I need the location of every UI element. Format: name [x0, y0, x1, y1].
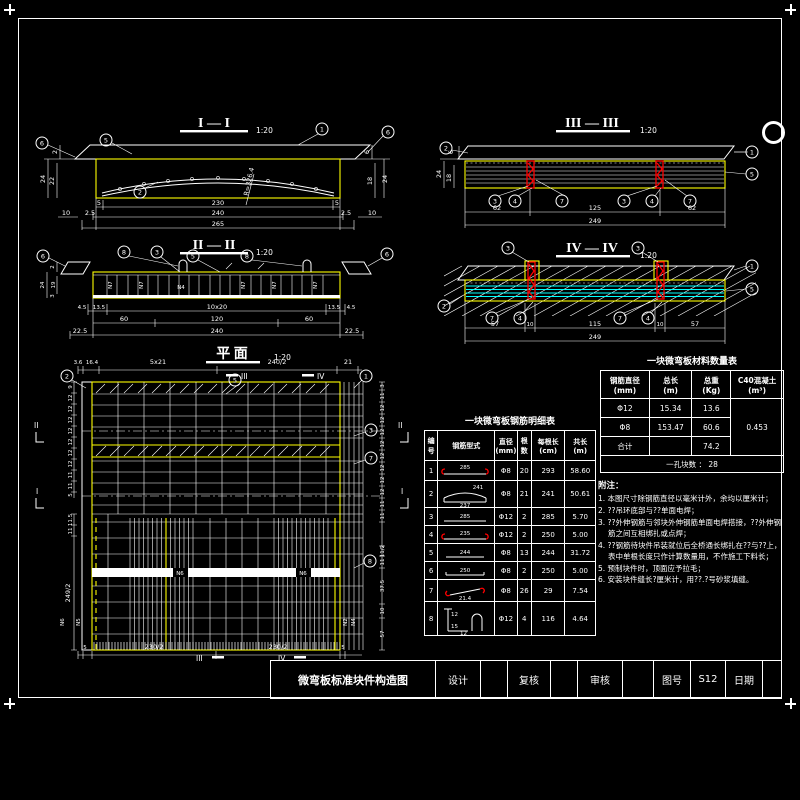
cell: Φ12 — [495, 526, 517, 544]
dim-lines: 57 10 115 10 57 249 — [465, 301, 725, 344]
cell: 1 — [425, 461, 438, 481]
cell: 13 — [517, 544, 531, 562]
cell: 153.47 — [649, 418, 692, 437]
bar-shape-7: 21.4 — [438, 580, 495, 602]
dim-label: 5 — [68, 493, 74, 497]
dim-label: 12 — [380, 417, 386, 424]
dim-label: 22.5 — [345, 327, 359, 335]
title-block: 微弯板标准块件构造图 设计 复核 审核 图号 S12 日期 — [270, 660, 782, 699]
col-header: 直径 (mm) — [495, 431, 517, 461]
table-row: 4 235 Φ12 2 250 5.00 — [425, 526, 596, 544]
dim-label: 11.5 — [68, 513, 74, 526]
dim-label: 10 — [527, 322, 534, 328]
bar-label: N6 — [299, 571, 307, 577]
dim-label: 9 — [68, 385, 74, 389]
section-title: II — II — [193, 238, 236, 253]
dim-label: 11 — [380, 559, 386, 566]
callout-number: 7 — [688, 198, 692, 206]
dense-bar-zone — [126, 518, 194, 650]
dim-label: 5x21 — [150, 358, 166, 366]
bar-shape-6: 250 — [438, 562, 495, 580]
dim-label: 3.6 — [74, 360, 83, 366]
design-value — [480, 661, 507, 698]
review-value — [622, 661, 653, 698]
callout-number: 1 — [750, 263, 754, 271]
col-header: 总长 (m) — [649, 371, 692, 399]
dim-label: 12 — [68, 428, 74, 435]
dim-label: 6 — [363, 150, 371, 154]
check-label: 复核 — [507, 661, 550, 698]
table-row: 1 285 Φ8 20 293 58.60 — [425, 461, 596, 481]
dim-label: 12 — [380, 441, 386, 448]
dim-label: 12 — [68, 439, 74, 446]
dim-label: 57 — [380, 630, 386, 637]
bar-label: N7 — [272, 281, 278, 289]
section-title: III — III — [565, 116, 619, 131]
col-header: 钢筋型式 — [438, 431, 495, 461]
cell: 7.54 — [565, 580, 596, 602]
edge-wing-hatch — [342, 262, 371, 274]
section-I-I-panel: I — I 1:20 R=326.4 5 230 5 2.5 240 2.5 2… — [30, 112, 402, 235]
dim-label: 240 — [211, 327, 223, 335]
bar-label: N4 — [177, 285, 185, 291]
section-flag: II — [34, 421, 38, 430]
check-value — [550, 661, 577, 698]
material-table: 钢筋直径 (mm) 总长 (m) 总重 (Kg) C40混凝土 (m³) Φ12… — [600, 370, 784, 473]
callout-number: 6 — [385, 251, 389, 259]
cell: 20 — [517, 461, 531, 481]
dim-label: 12 — [68, 417, 74, 424]
dim-label: 12 — [68, 461, 74, 468]
dim-label: 125 — [589, 204, 601, 212]
callout-number: 1 — [750, 149, 754, 157]
review-label: 审核 — [577, 661, 622, 698]
col-header: C40混凝土 (m³) — [731, 371, 784, 399]
cell: 5 — [425, 544, 438, 562]
dim-label: 2 — [51, 150, 59, 154]
cell — [649, 437, 692, 456]
cell: 15.34 — [649, 399, 692, 418]
callout-number: 5 — [233, 377, 237, 385]
cell: 74.2 — [692, 437, 731, 456]
cell: 6 — [425, 562, 438, 580]
cell: 4 — [425, 526, 438, 544]
left-dim-chain: 9 12 12 12 12 12 12 12 11 11 5 11.5 11 2… — [64, 382, 77, 650]
cell: Φ8 — [495, 562, 517, 580]
dim-label: 37.5 — [380, 579, 386, 592]
callout-number: 5 — [750, 286, 754, 294]
dim-label: 12 — [380, 489, 386, 496]
bar-label: N5 — [76, 618, 82, 626]
cell: 2 — [517, 526, 531, 544]
dim-label: 115 — [589, 320, 601, 328]
cell: 合计 — [601, 437, 650, 456]
rib-slab-outline — [93, 272, 340, 298]
section-III-III-panel: III — III 1:20 62 125 62 249 6 24 18 2 1… — [432, 112, 780, 235]
cell: 8 — [425, 602, 438, 636]
date-value — [762, 661, 781, 698]
dim-label: 16.4 — [86, 360, 99, 366]
bar-label: N6 — [176, 571, 184, 577]
section-flag: II — [398, 421, 402, 430]
bar-label: N2 — [343, 618, 349, 626]
shape-dim: 285 — [460, 514, 471, 520]
cell: Φ8 — [495, 580, 517, 602]
callout-number: 3 — [155, 249, 159, 257]
dim-label: 2.5 — [341, 209, 351, 217]
edge-wing-hatch — [61, 262, 90, 274]
callout-number: 7 — [618, 315, 622, 323]
shape-dim: 235 — [460, 531, 471, 537]
dim-label: 249/2 — [64, 584, 72, 603]
note-item: 1. 本图尺寸除钢筋直径以毫米计外，余均以厘米计； — [598, 494, 788, 505]
section-title: I — I — [198, 116, 230, 131]
bottom-tick-band — [92, 642, 340, 650]
callout-number: 2 — [444, 145, 448, 153]
table-row: 2 241237 Φ8 21 241 50.61 — [425, 481, 596, 508]
corner-mark — [790, 4, 792, 15]
shape-dim: 21.4 — [459, 596, 472, 602]
dim-label: 11 — [380, 513, 386, 520]
bar-label: N7 — [108, 281, 114, 289]
shape-dim: 12 — [460, 631, 467, 637]
dim-label: 24 — [40, 281, 46, 288]
callout-number: 2 — [442, 303, 446, 311]
dim-label: 240/2 — [268, 358, 287, 366]
date-label: 日期 — [725, 661, 762, 698]
col-header: 钢筋直径 (mm) — [601, 371, 650, 399]
section-flag: III — [196, 654, 203, 663]
cell: 4 — [517, 602, 531, 636]
joint-bar — [656, 161, 663, 188]
dim-label: 230/2 — [145, 643, 164, 651]
drawing-title: 微弯板标准块件构造图 — [271, 661, 435, 698]
dim-label: 2 — [50, 265, 56, 269]
figure-number-label: 图号 — [653, 661, 690, 698]
cell: 2 — [517, 508, 531, 526]
material-table-block: 一块微弯板材料数量表 钢筋直径 (mm) 总长 (m) 总重 (Kg) C40混… — [600, 354, 784, 473]
callout-number: 7 — [490, 315, 494, 323]
callout-number: 5 — [750, 171, 754, 179]
cell: Φ8 — [495, 544, 517, 562]
cell: 31.72 — [565, 544, 596, 562]
dim-label: 13.5 — [328, 305, 341, 311]
cell: 2 — [425, 481, 438, 508]
bar-labels: N7 N7 N7 N7 N7 N4 — [108, 281, 319, 291]
long-diagonal-hatch — [372, 266, 800, 316]
design-label: 设计 — [435, 661, 480, 698]
shape-dim: 285 — [460, 465, 471, 471]
note-item: 4. ??钢筋待块件吊装就位后全桥通长绑扎在??与??上，表中单根长度只作计算数… — [598, 541, 788, 563]
dim-label: 24 — [39, 175, 47, 183]
scale-label: 1:20 — [640, 126, 657, 135]
shape-dim: 237 — [460, 503, 471, 509]
callout-number: 4 — [650, 198, 654, 206]
callout-number: 7 — [560, 198, 564, 206]
dim-lines: 4.5 13.5 10x20 13.5 4.5 60 120 60 22.5 2… — [40, 262, 363, 339]
dim-label: 12 — [68, 395, 74, 402]
callout-number: 5 — [191, 253, 195, 261]
callout-number: 3 — [506, 245, 510, 253]
plank-outline-highlight — [465, 161, 725, 188]
dim-label: 13.5 — [93, 305, 106, 311]
dim-label: 265 — [212, 220, 224, 228]
notes-block: 附注： 1. 本图尺寸除钢筋直径以毫米计外，余均以厘米计； 2. ??吊环底部与… — [598, 480, 788, 587]
concrete-volume: 0.453 — [731, 399, 784, 456]
cell: Φ8 — [495, 461, 517, 481]
dim-label: 249 — [589, 333, 601, 341]
rebar-table-block: 一块微弯板钢筋明细表 编 号 钢筋型式 直径 (mm) 根 数 每根长 (cm)… — [424, 414, 596, 636]
callout-number: 5 — [104, 137, 108, 145]
cell: 13.6 — [692, 399, 731, 418]
callout-number: 2 — [65, 373, 69, 381]
shape-dim: 15 — [451, 624, 458, 630]
dim-label: 19 — [51, 281, 57, 288]
dim-label: 230 — [212, 199, 224, 207]
slab-hatch — [44, 145, 390, 159]
section-flag: III — [241, 372, 248, 381]
cell: 5.70 — [565, 508, 596, 526]
cell: 241 — [531, 481, 565, 508]
cell: 250 — [531, 526, 565, 544]
cell: 5.00 — [565, 526, 596, 544]
dim-label: 5 — [97, 199, 101, 207]
section-flag: I — [36, 487, 38, 496]
bar-shape-3: 285 — [438, 508, 495, 526]
bar-shape-2: 241237 — [438, 481, 495, 508]
table-row: 6 250 Φ8 2 250 5.00 — [425, 562, 596, 580]
callout-number: 8 — [368, 558, 372, 566]
section-flag: I — [401, 487, 403, 496]
dim-label: 249 — [589, 217, 601, 225]
lamination-lines — [466, 167, 724, 183]
callout-number: 4 — [646, 315, 650, 323]
rebar-table: 编 号 钢筋型式 直径 (mm) 根 数 每根长 (cm) 共长 (m) 1 2… — [424, 430, 596, 636]
dim-label: 10 — [368, 209, 376, 217]
dim-label: 60 — [305, 315, 313, 323]
callouts: 2 1 5 3 4 7 3 4 7 — [440, 142, 758, 207]
dim-label: 10 — [62, 209, 70, 217]
dim-label: 3 — [380, 384, 386, 388]
dim-label: 22.5 — [73, 327, 87, 335]
dim-label: 11 — [380, 501, 386, 508]
bar-label: N4 — [351, 618, 357, 626]
dim-label: 120 — [211, 315, 223, 323]
material-table-title: 一块微弯板材料数量表 — [600, 354, 784, 367]
shape-dim: 12 — [451, 612, 458, 618]
cell: 3 — [425, 508, 438, 526]
callout-number: 3 — [622, 198, 626, 206]
bar-shape-5: 244 — [438, 544, 495, 562]
dim-label: 230/2 — [269, 643, 288, 651]
callout-number: 6 — [40, 140, 44, 148]
bar-shape-8: 121512 — [438, 602, 495, 636]
dense-bar-zone — [270, 518, 332, 650]
shear-key-notch — [654, 261, 668, 280]
scale-label: 1:20 — [256, 248, 273, 257]
dim-label: 5 — [335, 199, 339, 207]
dim-label: 12 — [380, 477, 386, 484]
dim-label: 24 — [435, 170, 443, 178]
corner-mark — [9, 698, 11, 709]
cell: 2 — [517, 562, 531, 580]
diaphragm-band: N6 N6 — [92, 568, 340, 577]
table-row: Φ12 15.34 13.6 0.453 — [601, 399, 784, 418]
note-item: 2. ??吊环底部与??单面电焊； — [598, 506, 788, 517]
bar-label: N7 — [241, 281, 247, 289]
joint-bar — [527, 161, 534, 188]
dim-label: 18 — [366, 177, 374, 185]
shape-dim: 250 — [460, 568, 471, 574]
callout-number: 1 — [320, 126, 324, 134]
dim-label: 12 — [380, 405, 386, 412]
col-header: 每根长 (cm) — [531, 431, 565, 461]
table-footer-row: 一孔块数 ： 28 — [601, 456, 784, 473]
notes-title: 附注： — [598, 480, 788, 492]
dim-label: 24 — [381, 175, 389, 183]
bar-shape-4: 235 — [438, 526, 495, 544]
title-underline — [180, 130, 248, 132]
section-flag: IV — [317, 372, 325, 381]
dim-label: 10 — [380, 607, 386, 614]
cell: 29 — [531, 580, 565, 602]
cell: 293 — [531, 461, 565, 481]
cell: 244 — [531, 544, 565, 562]
figure-number-value: S12 — [690, 661, 725, 698]
dim-lines: 5 230 5 2.5 240 2.5 265 10 10 2 24 22 6 … — [39, 145, 389, 230]
dim-label: 11 — [68, 472, 74, 479]
cell: 21 — [517, 481, 531, 508]
slab-hatch — [440, 146, 748, 159]
dim-label: 18 — [445, 174, 453, 182]
dim-label: 21 — [344, 358, 352, 366]
callout-number: 6 — [386, 129, 390, 137]
bar-label: N7 — [139, 281, 145, 289]
side-section-flags: II II I I — [34, 421, 408, 508]
cell: 60.6 — [692, 418, 731, 437]
dim-label: 12 — [380, 465, 386, 472]
dim-label: 57 — [691, 320, 699, 328]
cell: Φ12 — [601, 399, 650, 418]
bar-shape-1: 285 — [438, 461, 495, 481]
dim-label: 11/2 — [380, 545, 386, 557]
callout-number: 7 — [369, 455, 373, 463]
callout-number: 4 — [513, 198, 517, 206]
dim-label: 10x20 — [207, 303, 227, 311]
section-II-II-panel: II — II 1:20 N7 N7 N7 N7 N7 N4 4.5 13.5 … — [30, 236, 402, 348]
dim-lines: 62 125 62 249 6 24 18 — [435, 146, 725, 228]
table-row: 7 21.4 Φ8 26 29 7.54 — [425, 580, 596, 602]
callout-number: 2 — [138, 189, 142, 197]
cell: Φ8 — [601, 418, 650, 437]
col-header: 共长 (m) — [565, 431, 596, 461]
dim-label: 5 — [341, 645, 345, 651]
dim-label: 60 — [120, 315, 128, 323]
dim-label: 12 — [68, 406, 74, 413]
note-item: 5. 预制块件时，顶面应予拉毛； — [598, 564, 788, 575]
dim-label: 4.5 — [347, 305, 356, 311]
note-item: 3. ??外伸钢筋与邻块外伸钢筋单面电焊搭接，??外伸钢筋之间互相绑扎或点焊； — [598, 518, 788, 540]
dim-label: 12 — [68, 450, 74, 457]
dim-label: 11 — [68, 528, 74, 535]
dim-label: 3 — [50, 294, 56, 298]
cell: 4.64 — [565, 602, 596, 636]
dim-label: 12 — [380, 453, 386, 460]
dim-label: 12 — [380, 429, 386, 436]
table-row: 5 244 Φ8 13 244 31.72 — [425, 544, 596, 562]
rebar-table-title: 一块微弯板钢筋明细表 — [424, 414, 596, 427]
callout-number: 1 — [364, 373, 368, 381]
cell: Φ12 — [495, 508, 517, 526]
title-underline — [556, 130, 630, 132]
col-header: 根 数 — [517, 431, 531, 461]
mid-hatch-band — [92, 445, 340, 457]
section-title: IV — IV — [566, 241, 618, 256]
shape-dim: 241 — [473, 485, 484, 491]
shape-dim: 244 — [460, 550, 471, 556]
bar-label: N7 — [313, 281, 319, 289]
cell: 50.61 — [565, 481, 596, 508]
top-tick-marks — [226, 263, 264, 269]
callout-number: 3 — [493, 198, 497, 206]
dim-label: 4.5 — [78, 305, 87, 311]
callout-number: 8 — [122, 249, 126, 257]
cell: 58.60 — [565, 461, 596, 481]
blocks-per-span: 一孔块数 ： 28 — [601, 456, 784, 473]
cell: 250 — [531, 562, 565, 580]
cell: 116 — [531, 602, 565, 636]
callout-number: 6 — [41, 253, 45, 261]
table-row: 3 285 Φ12 2 285 5.70 — [425, 508, 596, 526]
radius-label: R=326.4 — [242, 167, 256, 197]
cell: 5.00 — [565, 562, 596, 580]
callout-number: 3 — [636, 245, 640, 253]
corner-mark — [9, 4, 11, 15]
bar-label: N6 — [60, 618, 66, 626]
cell: 7 — [425, 580, 438, 602]
section-IV-IV-panel: IV — IV 1:20 57 10 115 10 57 249 3 3 1 5… — [432, 236, 780, 348]
callout-number: 8 — [245, 253, 249, 261]
callout-number: 4 — [518, 315, 522, 323]
dim-label: 240 — [212, 209, 224, 217]
mesh-layer-lines — [466, 286, 724, 297]
dim-label: 10 — [657, 322, 664, 328]
title-underline — [556, 255, 630, 257]
edge-hatch-strip — [82, 382, 92, 650]
table-row: 8 121512 Φ12 4 116 4.64 — [425, 602, 596, 636]
drawing-sheet: { "sheet":{"bg":"#000000","line":"#fffff… — [0, 0, 800, 800]
col-header: 编 号 — [425, 431, 438, 461]
dim-label: 22 — [48, 177, 56, 185]
plan-title: 平 面 — [216, 346, 248, 362]
dim-label: 11 — [380, 393, 386, 400]
col-header: 总重 (Kg) — [692, 371, 731, 399]
corner-mark — [790, 698, 792, 709]
note-item: 6. 安装块件缝长?厘米计，用??.?号砂浆填缝。 — [598, 575, 788, 586]
cell: 26 — [517, 580, 531, 602]
plan-view-panel: 平 面 1:20 3.6 16.4 5x21 240/2 21 III IV N… — [30, 346, 422, 662]
dim-label: 11 — [68, 483, 74, 490]
callout-number: 3 — [369, 427, 373, 435]
right-dim-chain: 3 11 12 12 12 12 12 12 12 12 11 11 11/2 … — [379, 382, 386, 650]
dim-label: 2.5 — [85, 209, 95, 217]
cell: 285 — [531, 508, 565, 526]
bottom-flange — [93, 295, 340, 298]
cell: Φ8 — [495, 481, 517, 508]
scale-label: 1:20 — [256, 126, 273, 135]
cell: Φ12 — [495, 602, 517, 636]
title-underline — [206, 361, 260, 363]
